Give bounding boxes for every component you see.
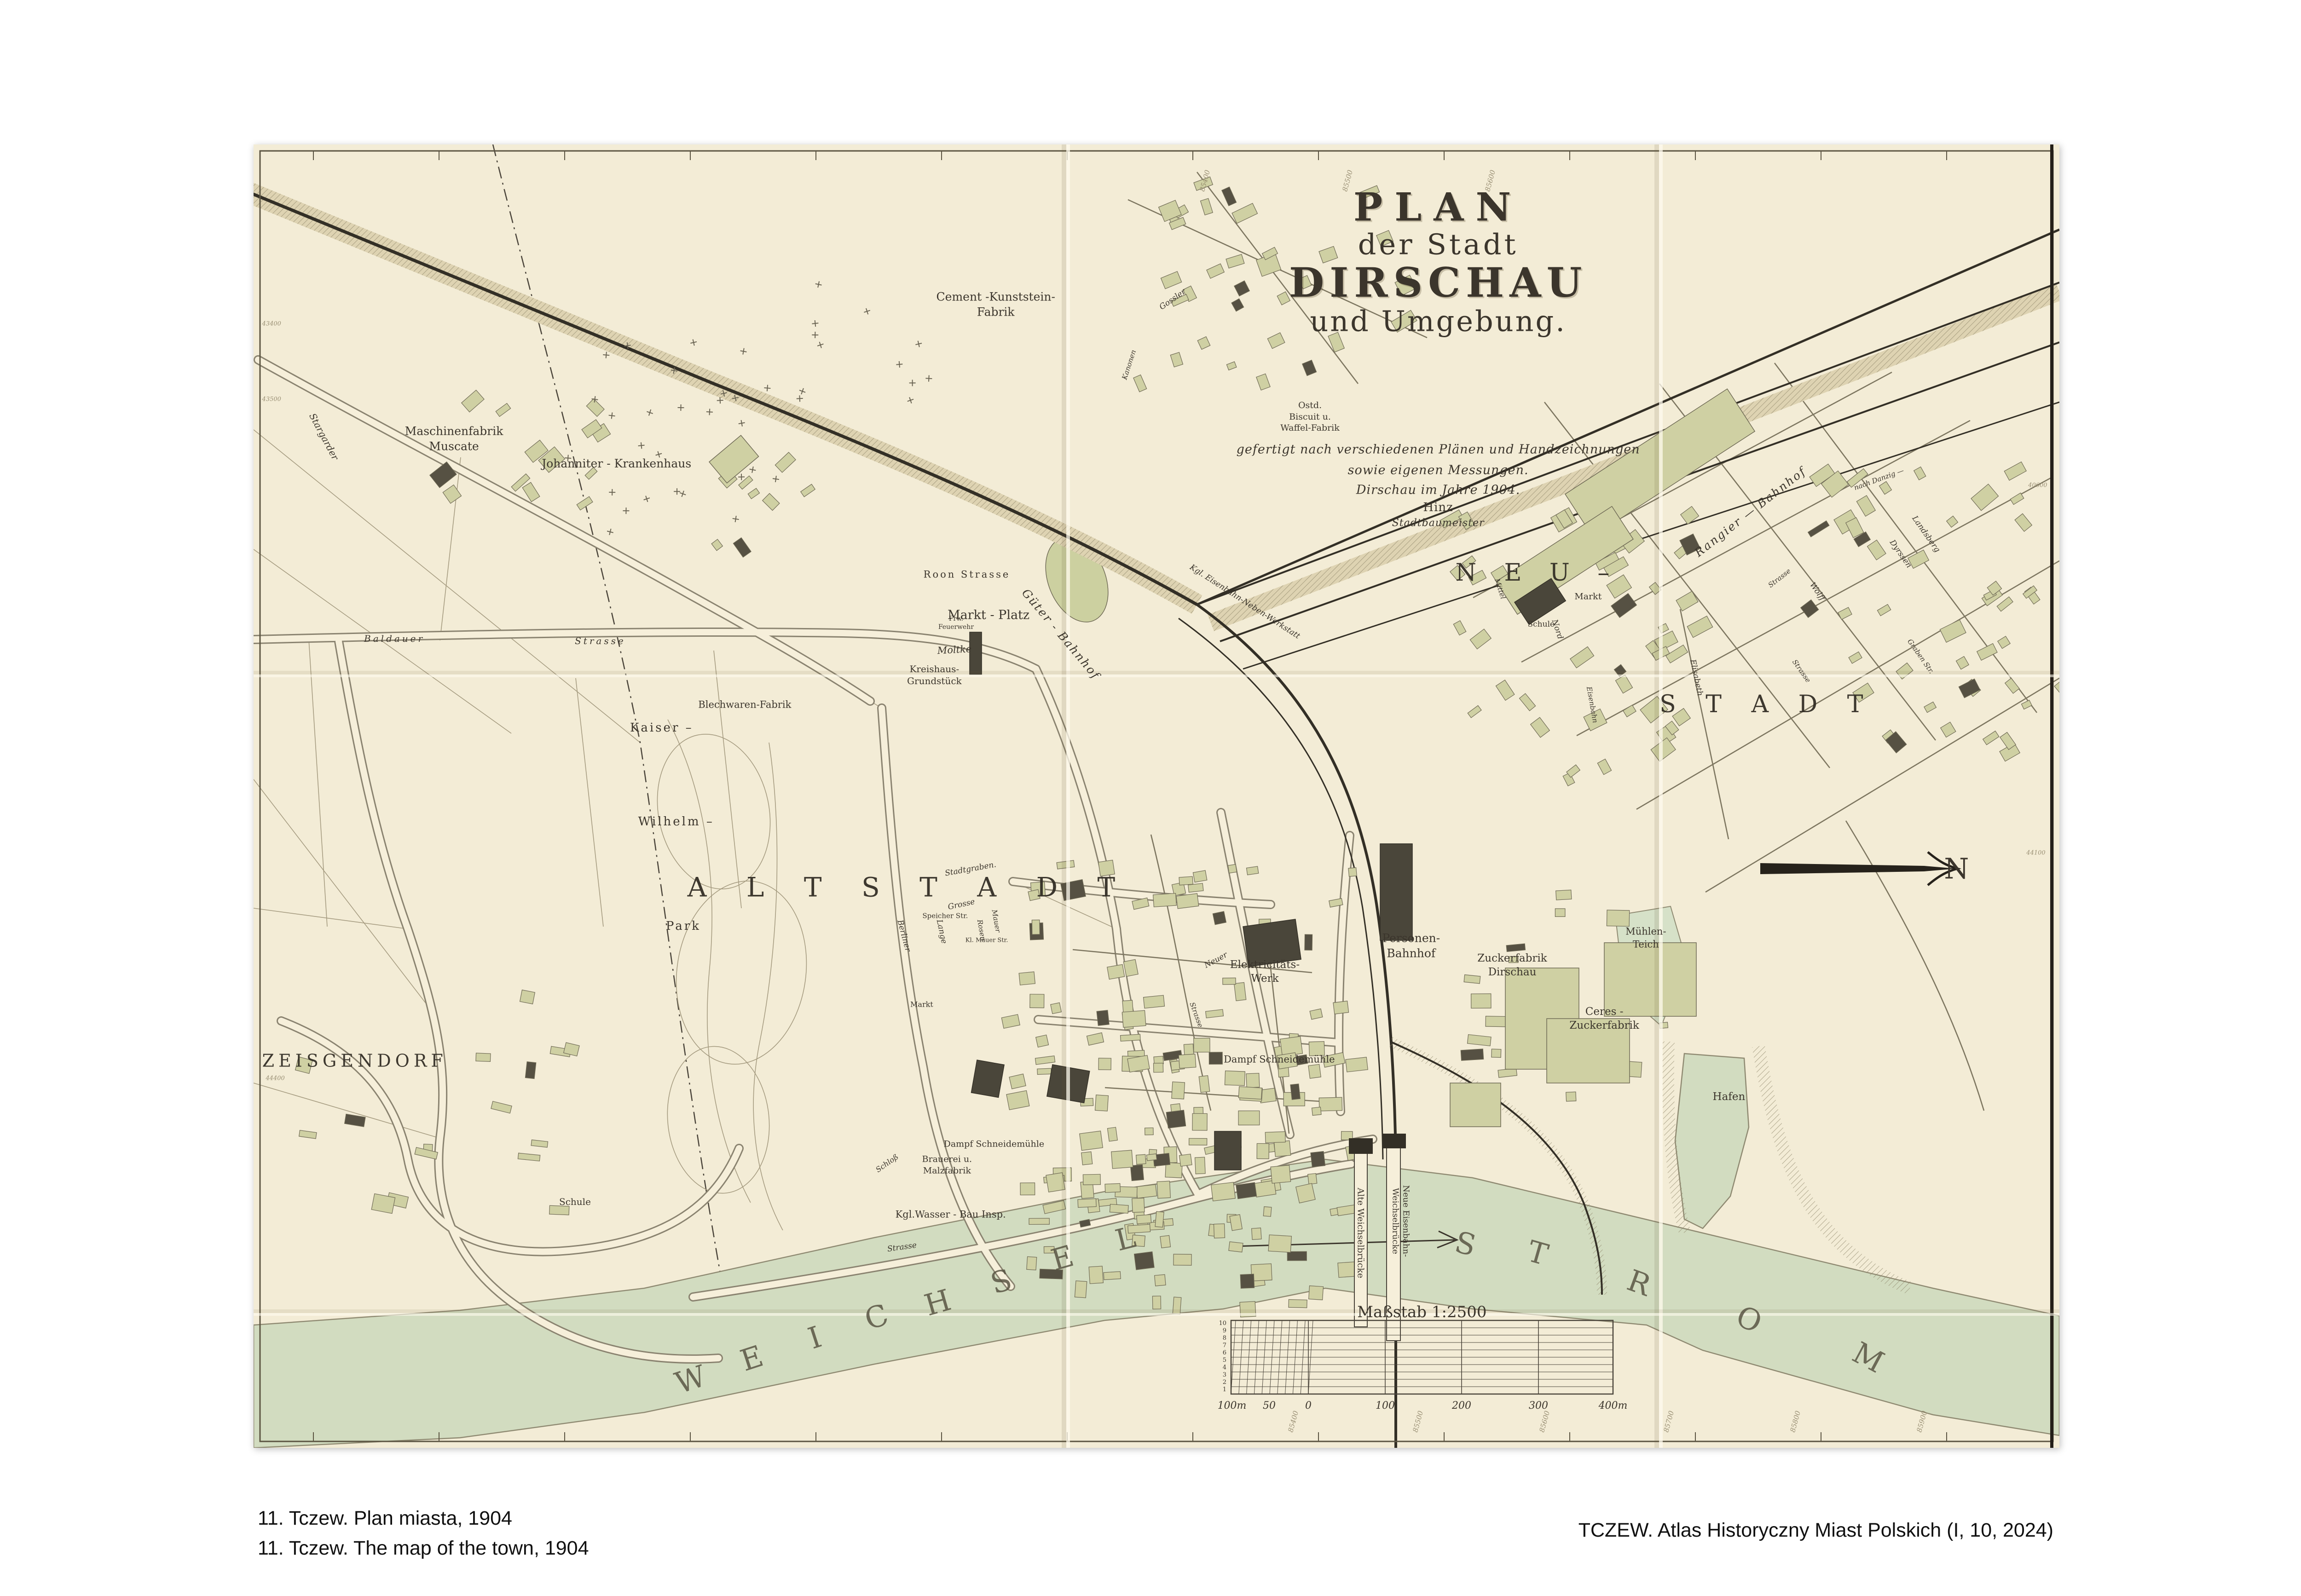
atlas-page: 100m500100200300400m10987654321 (0, 0, 2301, 1596)
caption-left: 11. Tczew. Plan miasta, 1904 11. Tczew. … (258, 1504, 589, 1563)
caption-area: 11. Tczew. Plan miasta, 1904 11. Tczew. … (0, 0, 2301, 1596)
caption-english: 11. Tczew. The map of the town, 1904 (258, 1533, 589, 1563)
caption-polish: 11. Tczew. Plan miasta, 1904 (258, 1504, 589, 1533)
caption-source: TCZEW. Atlas Historyczny Miast Polskich … (1578, 1519, 2053, 1542)
